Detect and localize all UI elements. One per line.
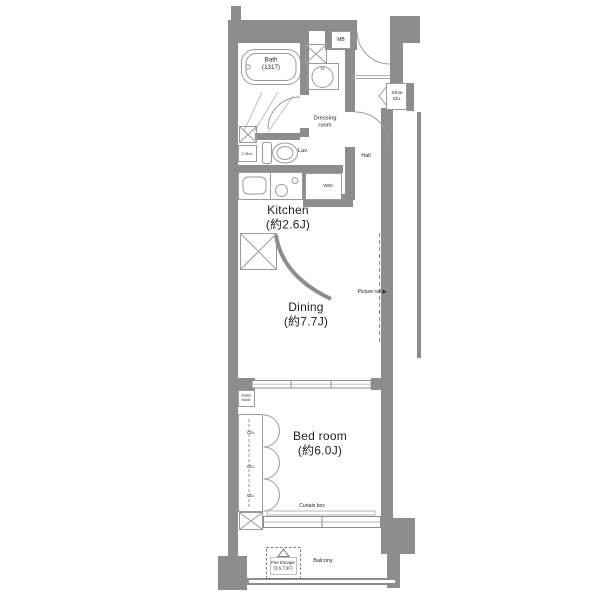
service-space-icon — [240, 127, 257, 143]
right-arrow-icon: ▶ — [383, 289, 387, 295]
hall-door-arc — [355, 112, 390, 147]
service-space-icon — [240, 513, 263, 530]
bedroom-window-icon — [264, 517, 381, 528]
fire-escape-label: Fire Escape (3,6,7,9F) — [271, 561, 294, 572]
closet-label: Clo. — [247, 493, 255, 498]
balcony-label: Balcony — [313, 558, 333, 565]
closet-icon — [239, 415, 280, 512]
entrance-step-lines — [353, 76, 390, 79]
curved-partition — [276, 235, 331, 299]
dressing-room-label: Dressing room — [314, 115, 337, 129]
dining-label: Dining (約7.7J) — [284, 302, 328, 331]
picture-rail-label: Picture rail ▶ — [358, 289, 387, 295]
curtain-box-label: Curtain box — [299, 503, 325, 509]
kitchen-counter-icon — [239, 173, 303, 200]
floorplan-canvas: Bath (1317) MB Shoe Clo. Dressing room L… — [0, 0, 600, 600]
closet-door-arcs — [264, 415, 280, 511]
toilet-icon — [263, 143, 298, 164]
bedroom-label: Bed room (約6.0J) — [293, 431, 347, 460]
kitchen-label: Kitchen (約2.6J) — [266, 205, 310, 234]
bath-label: Bath (1317) — [262, 57, 280, 72]
closet-label: Clo. — [247, 430, 255, 435]
lavatory-label: Lav. — [298, 148, 308, 155]
c-box-label: C.Box — [242, 152, 253, 157]
washer-dryer-label: W/D — [323, 183, 332, 189]
curtain-box-strip — [267, 511, 375, 515]
service-space-icon — [306, 45, 327, 64]
entrance-door-arc — [357, 31, 390, 64]
refrigerator-space-icon — [241, 234, 277, 270]
hall-label: Hall — [361, 153, 370, 160]
bath-door-arc — [268, 97, 300, 129]
mb-label: MB — [337, 37, 345, 43]
glass-block-label: Glass block — [241, 393, 251, 402]
closet-label: Clo. — [247, 464, 255, 469]
shoe-closet-label: Shoe Clo. — [391, 90, 402, 102]
fixture-linework — [0, 0, 600, 600]
vanity-sink-icon — [308, 64, 339, 90]
room-partition-window — [252, 381, 371, 389]
